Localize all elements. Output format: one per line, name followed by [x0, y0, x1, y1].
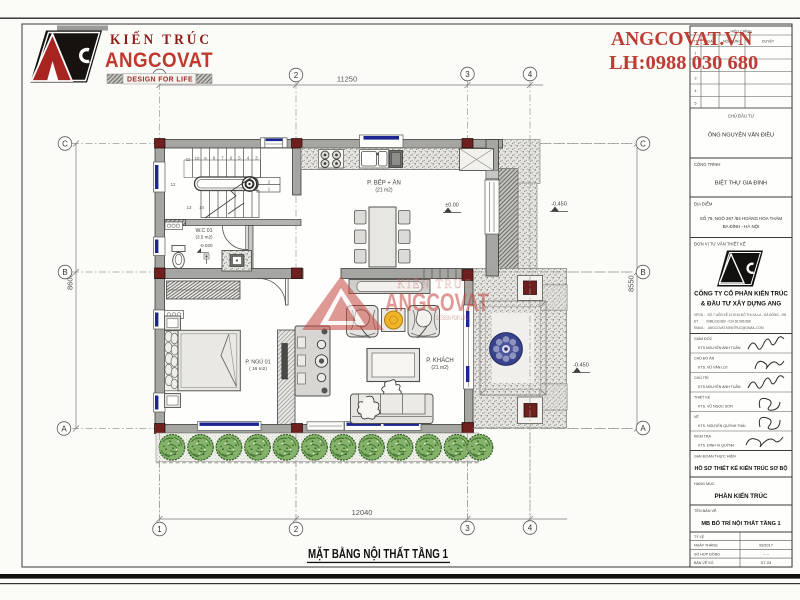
svg-text:11250: 11250	[337, 75, 357, 84]
svg-text:EMAIL : ANGCOVAT.KIENTRUC@GM: EMAIL : ANGCOVAT.KIENTRUC@GMAIL.COM	[694, 326, 764, 330]
svg-text:B: B	[640, 268, 645, 277]
svg-text:-- --: -- --	[763, 552, 770, 556]
svg-text:10: 10	[195, 156, 200, 161]
svg-text:DESIGN FOR LIFE: DESIGN FOR LIFE	[436, 316, 469, 322]
svg-text:BIỆT THỰ GIA ĐÌNH: BIỆT THỰ GIA ĐÌNH	[715, 179, 767, 187]
svg-text:KIẾN TRÚC: KIẾN TRÚC	[110, 31, 212, 48]
svg-text:( 16 m2): ( 16 m2)	[249, 366, 267, 372]
svg-text:4: 4	[695, 89, 697, 93]
svg-text:PHẦN KIẾN TRÚC: PHẦN KIẾN TRÚC	[715, 493, 768, 500]
svg-text:KTS. VŨ NGỌC SƠN: KTS. VŨ NGỌC SƠN	[698, 404, 733, 409]
svg-text:(3.5 m2): (3.5 m2)	[195, 235, 213, 240]
svg-text:CHỦ ĐẦU TƯ: CHỦ ĐẦU TƯ	[728, 114, 755, 119]
svg-text:3: 3	[465, 524, 470, 533]
svg-text:(21 m2): (21 m2)	[375, 188, 393, 194]
svg-text:4: 4	[528, 70, 533, 79]
svg-text:11: 11	[186, 157, 191, 162]
svg-text:KTS. VŨ VĂN LỢI: KTS. VŨ VĂN LỢI	[698, 365, 727, 370]
svg-text:-0.450: -0.450	[573, 363, 589, 369]
svg-text:±0.00: ±0.00	[445, 203, 459, 209]
svg-text:-0.020: -0.020	[199, 243, 212, 248]
svg-text:KTS.NGUYỄN ANH TUẤN: KTS.NGUYỄN ANH TUẤN	[698, 384, 741, 389]
svg-text:CÔNG TY CỔ PHẦN KIẾN TRÚC: CÔNG TY CỔ PHẦN KIẾN TRÚC	[694, 290, 788, 298]
svg-text:VPGD : SỐ 7 LIỀN KỀ 12 KHU Đ: VPGD : SỐ 7 LIỀN KỀ 12 KHU ĐÔ THỊ XA LA …	[694, 312, 787, 317]
svg-text:TÊN BẢN VẼ: TÊN BẢN VẼ	[694, 508, 717, 513]
svg-text:1: 1	[157, 525, 162, 534]
svg-text:& ĐẦU TƯ XÂY DỰNG ANG: & ĐẦU TƯ XÂY DỰNG ANG	[701, 301, 782, 308]
svg-text:A: A	[640, 424, 646, 433]
svg-text:ĐT : 0988.030.680 - 024.: ĐT : 0988.030.680 - 024.66.586.586	[694, 320, 751, 324]
svg-text:W.C 01: W.C 01	[195, 228, 212, 234]
svg-text:MẶT BẰNG NỘI THẤT TẦNG 1: MẶT BẰNG NỘI THẤT TẦNG 1	[308, 546, 448, 561]
svg-text:P. KHÁCH: P. KHÁCH	[426, 357, 454, 364]
svg-text:DUYỆT: DUYỆT	[762, 39, 775, 44]
svg-text:09/2017: 09/2017	[759, 544, 773, 548]
svg-text:ANGCOVAT: ANGCOVAT	[105, 48, 213, 72]
svg-text:DESIGN FOR LIFE: DESIGN FOR LIFE	[127, 75, 193, 84]
svg-text:TỶ LỆ: TỶ LỆ	[694, 534, 705, 539]
svg-text:2: 2	[294, 71, 299, 80]
svg-text:GIÁM ĐỐC: GIÁM ĐỐC	[694, 336, 713, 341]
svg-text:CHỦ TRÌ: CHỦ TRÌ	[694, 375, 709, 380]
svg-text:KIỂM TRA: KIỂM TRA	[694, 434, 712, 439]
svg-text:14: 14	[199, 205, 204, 210]
svg-text:C: C	[640, 140, 646, 149]
svg-text:GIAI ĐOẠN THỰC HIỆN: GIAI ĐOẠN THỰC HIỆN	[694, 454, 736, 459]
svg-text:2: 2	[294, 525, 299, 534]
svg-text:P. BẾP + ĂN: P. BẾP + ĂN	[367, 180, 401, 187]
svg-text:ANGCOVAT: ANGCOVAT	[385, 289, 489, 317]
svg-text:ANGCOVAT.VN: ANGCOVAT.VN	[611, 29, 752, 50]
svg-text:KTS. ĐINH VI QUỲNH: KTS. ĐINH VI QUỲNH	[698, 444, 735, 448]
svg-text:-0.450: -0.450	[551, 202, 567, 208]
svg-text:ĐƠN VỊ TƯ VẤN THIẾT KẾ: ĐƠN VỊ TƯ VẤN THIẾT KẾ	[694, 242, 746, 247]
svg-text:KT-03: KT-03	[761, 561, 771, 565]
svg-text:HỒ SƠ THIẾT KẾ KIẾN TRÚC SƠ BỘ: HỒ SƠ THIẾT KẾ KIẾN TRÚC SƠ BỘ	[695, 464, 788, 472]
svg-text:LH:0988 030 680: LH:0988 030 680	[609, 52, 758, 74]
svg-text:SỐ 76, NGÕ 267 /54 HOÀNG HOA T: SỐ 76, NGÕ 267 /54 HOÀNG HOA THÁM	[700, 216, 782, 221]
svg-text:BA ĐÌNH - HÀ NỘI: BA ĐÌNH - HÀ NỘI	[723, 224, 760, 229]
svg-text:SỐ HỢP ĐỒNG: SỐ HỢP ĐỒNG	[694, 551, 720, 556]
svg-text:5: 5	[695, 102, 697, 106]
svg-text:3: 3	[465, 70, 470, 79]
svg-text:VẼ: VẼ	[694, 414, 699, 419]
svg-text:HẠNG MỤC: HẠNG MỤC	[694, 482, 715, 486]
svg-text:CÔNG TRÌNH: CÔNG TRÌNH	[694, 162, 720, 167]
svg-text:KTS.NGUYỄN ANH TUẤN: KTS.NGUYỄN ANH TUẤN	[698, 345, 741, 350]
svg-text:P. NGỦ 01: P. NGỦ 01	[245, 359, 270, 366]
svg-text:C: C	[62, 140, 68, 149]
svg-text:3: 3	[695, 77, 697, 81]
svg-text:MB BỐ TRÍ NỘI THẤT TẦNG 1: MB BỐ TRÍ NỘI THẤT TẦNG 1	[701, 519, 780, 527]
svg-text:13: 13	[187, 205, 192, 210]
svg-text:ÔNG NGUYỄN VĂN ĐIỀU: ÔNG NGUYỄN VĂN ĐIỀU	[708, 132, 774, 139]
svg-text:12040: 12040	[352, 508, 373, 517]
svg-text:(21 m2): (21 m2)	[431, 365, 449, 371]
svg-text:THIẾT KẾ: THIẾT KẾ	[694, 395, 711, 400]
svg-text:CHỦ ĐỒ ÁN: CHỦ ĐỒ ÁN	[694, 356, 715, 361]
svg-text:12: 12	[171, 182, 176, 187]
svg-text:4: 4	[528, 524, 533, 533]
svg-text:NGÀY THÁNG: NGÀY THÁNG	[694, 544, 718, 548]
svg-text:BẢN VẼ SỐ: BẢN VẼ SỐ	[694, 560, 714, 565]
svg-text:A: A	[61, 425, 67, 434]
svg-text:ĐỊA ĐIỂM: ĐỊA ĐIỂM	[694, 202, 713, 207]
svg-text:8550: 8550	[627, 275, 636, 292]
svg-text:KTS. NGUYỄN QUỲNH THÁI: KTS. NGUYỄN QUỲNH THÁI	[698, 423, 745, 428]
svg-text:B: B	[62, 268, 67, 277]
